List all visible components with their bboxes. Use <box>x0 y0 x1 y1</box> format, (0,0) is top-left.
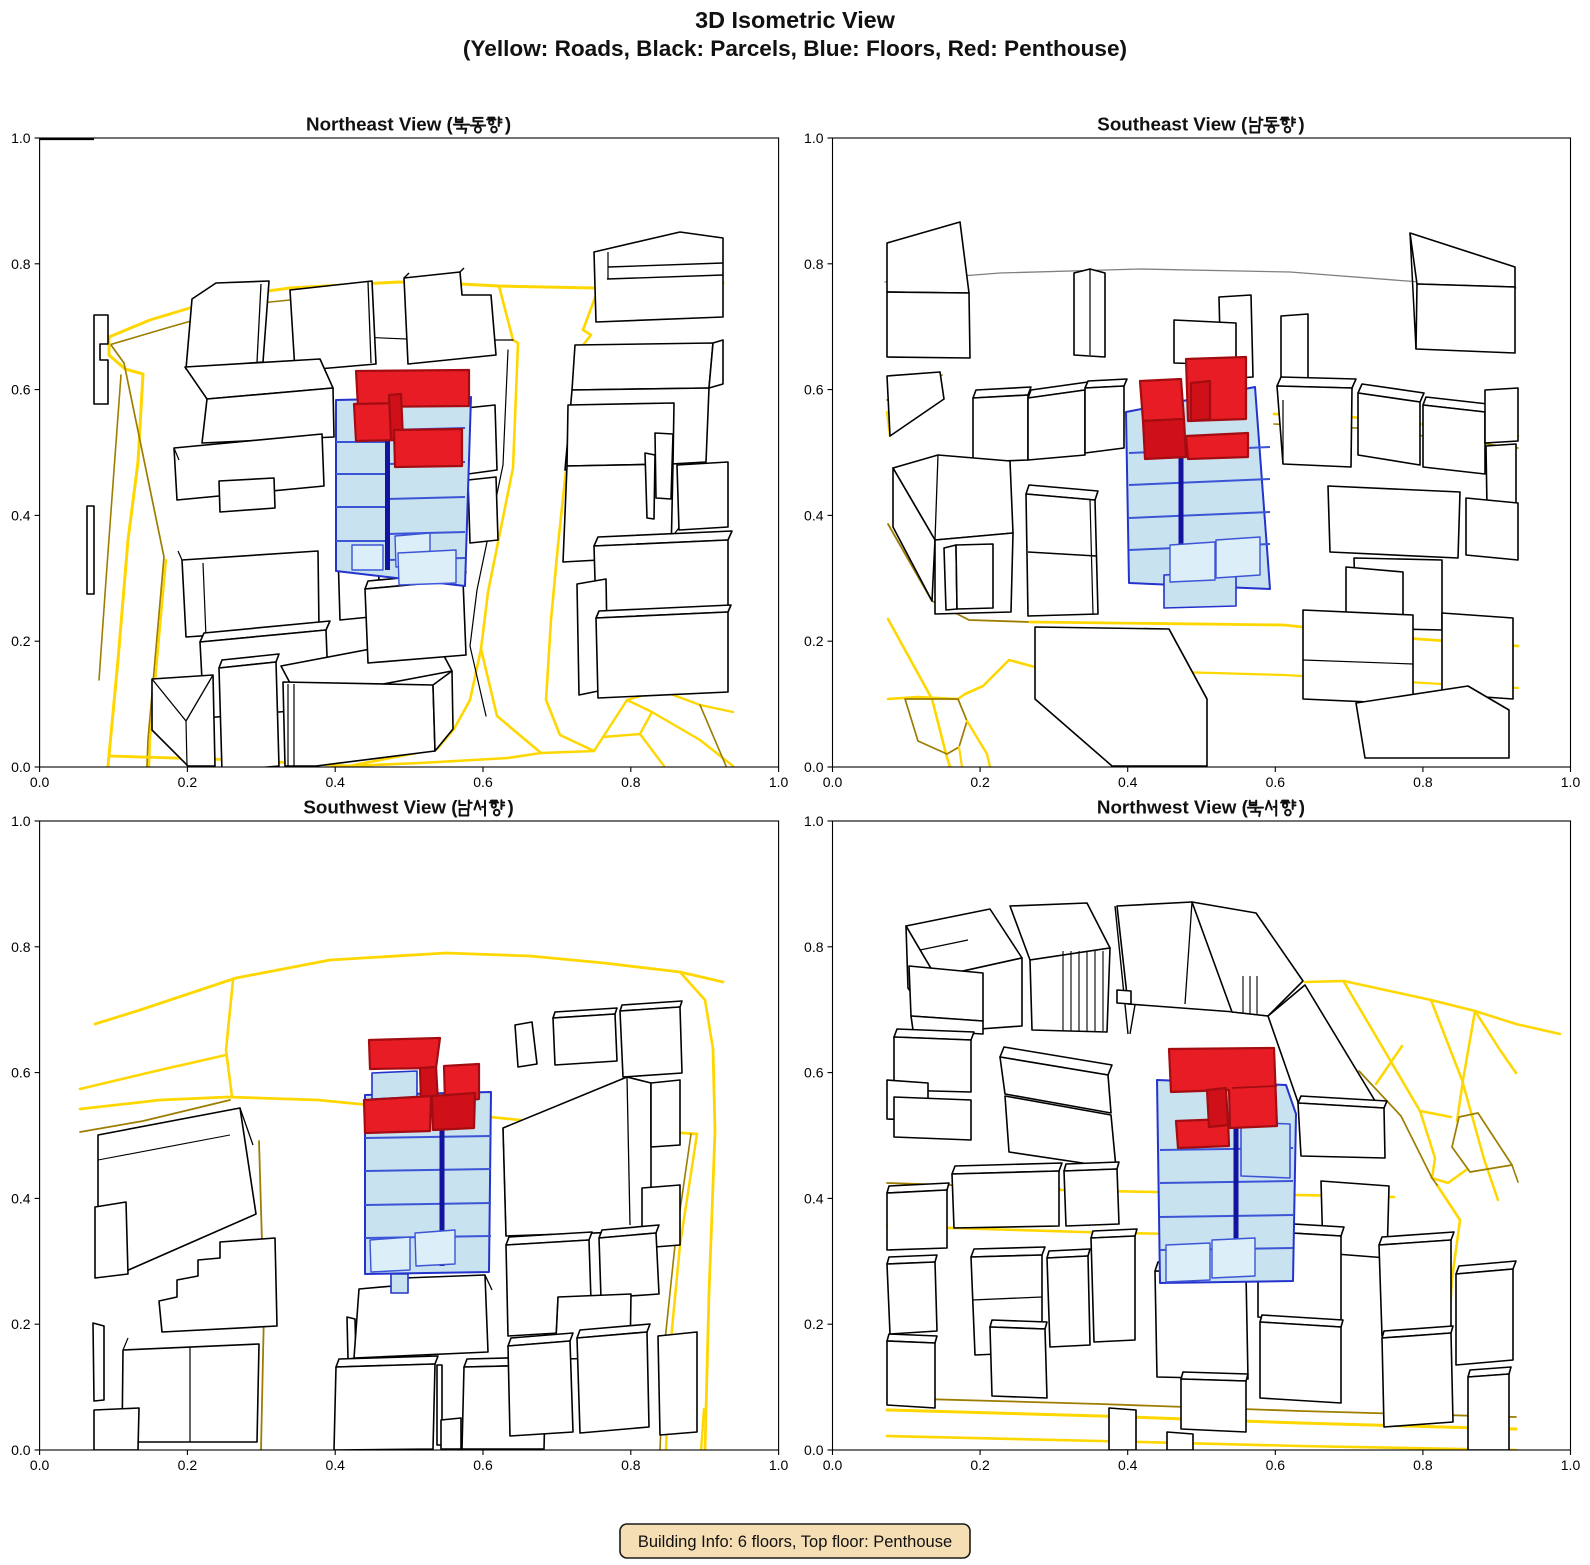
svg-text:0.4: 0.4 <box>804 507 824 523</box>
svg-text:): ) <box>1298 114 1304 135</box>
svg-text:): ) <box>508 797 514 818</box>
svg-text:1.0: 1.0 <box>804 813 824 829</box>
svg-text:0.0: 0.0 <box>11 1442 31 1458</box>
svg-text:1.0: 1.0 <box>804 130 824 146</box>
svg-text:1.0: 1.0 <box>11 813 31 829</box>
svg-text:0.6: 0.6 <box>804 1065 824 1081</box>
svg-text:0.0: 0.0 <box>30 774 50 790</box>
svg-text:0.8: 0.8 <box>621 1457 641 1473</box>
svg-text:0.8: 0.8 <box>11 256 31 272</box>
svg-text:(Yellow: Roads, Black: Parcels: (Yellow: Roads, Black: Parcels, Blue: Fl… <box>463 36 1127 61</box>
svg-text:0.2: 0.2 <box>804 633 824 649</box>
svg-text:0.4: 0.4 <box>804 1190 824 1206</box>
svg-text:0.4: 0.4 <box>11 507 31 523</box>
svg-text:0.6: 0.6 <box>473 1457 493 1473</box>
svg-text:Southeast View (: Southeast View ( <box>1097 114 1248 135</box>
svg-text:1.0: 1.0 <box>769 1457 789 1473</box>
svg-text:0.4: 0.4 <box>1118 774 1138 790</box>
svg-text:1.0: 1.0 <box>1561 774 1581 790</box>
svg-text:0.8: 0.8 <box>1413 1457 1433 1473</box>
svg-text:0.0: 0.0 <box>11 759 31 775</box>
svg-text:3D Isometric View: 3D Isometric View <box>695 7 896 33</box>
svg-text:0.6: 0.6 <box>11 1065 31 1081</box>
svg-text:0.8: 0.8 <box>804 256 824 272</box>
svg-text:0.2: 0.2 <box>11 633 31 649</box>
svg-text:1.0: 1.0 <box>1561 1457 1581 1473</box>
svg-text:0.2: 0.2 <box>178 774 198 790</box>
svg-text:Southwest View (: Southwest View ( <box>303 797 458 818</box>
svg-text:0.6: 0.6 <box>11 382 31 398</box>
svg-text:0.0: 0.0 <box>823 1457 843 1473</box>
svg-text:Northeast View (: Northeast View ( <box>306 114 454 135</box>
svg-text:0.6: 0.6 <box>473 774 493 790</box>
svg-text:0.6: 0.6 <box>804 382 824 398</box>
svg-text:0.2: 0.2 <box>970 774 990 790</box>
svg-text:0.4: 0.4 <box>11 1190 31 1206</box>
svg-text:0.2: 0.2 <box>804 1316 824 1332</box>
svg-text:1.0: 1.0 <box>11 130 31 146</box>
svg-text:Northwest View (: Northwest View ( <box>1097 797 1249 818</box>
svg-text:Building Info: 6 floors, Top f: Building Info: 6 floors, Top floor: Pent… <box>638 1533 952 1551</box>
svg-text:0.2: 0.2 <box>178 1457 198 1473</box>
svg-text:0.4: 0.4 <box>325 1457 345 1473</box>
svg-text:0.0: 0.0 <box>30 1457 50 1473</box>
svg-text:0.0: 0.0 <box>823 774 843 790</box>
svg-text:): ) <box>505 114 511 135</box>
svg-text:0.0: 0.0 <box>804 759 824 775</box>
svg-text:0.2: 0.2 <box>11 1316 31 1332</box>
svg-text:0.8: 0.8 <box>621 774 641 790</box>
svg-text:0.4: 0.4 <box>325 774 345 790</box>
svg-text:): ) <box>1299 797 1305 818</box>
svg-text:0.6: 0.6 <box>1266 774 1286 790</box>
svg-text:0.6: 0.6 <box>1266 1457 1286 1473</box>
svg-text:0.0: 0.0 <box>804 1442 824 1458</box>
svg-text:0.2: 0.2 <box>970 1457 990 1473</box>
svg-text:1.0: 1.0 <box>769 774 789 790</box>
svg-text:0.8: 0.8 <box>804 939 824 955</box>
svg-text:0.8: 0.8 <box>1413 774 1433 790</box>
svg-text:0.4: 0.4 <box>1118 1457 1138 1473</box>
svg-text:0.8: 0.8 <box>11 939 31 955</box>
